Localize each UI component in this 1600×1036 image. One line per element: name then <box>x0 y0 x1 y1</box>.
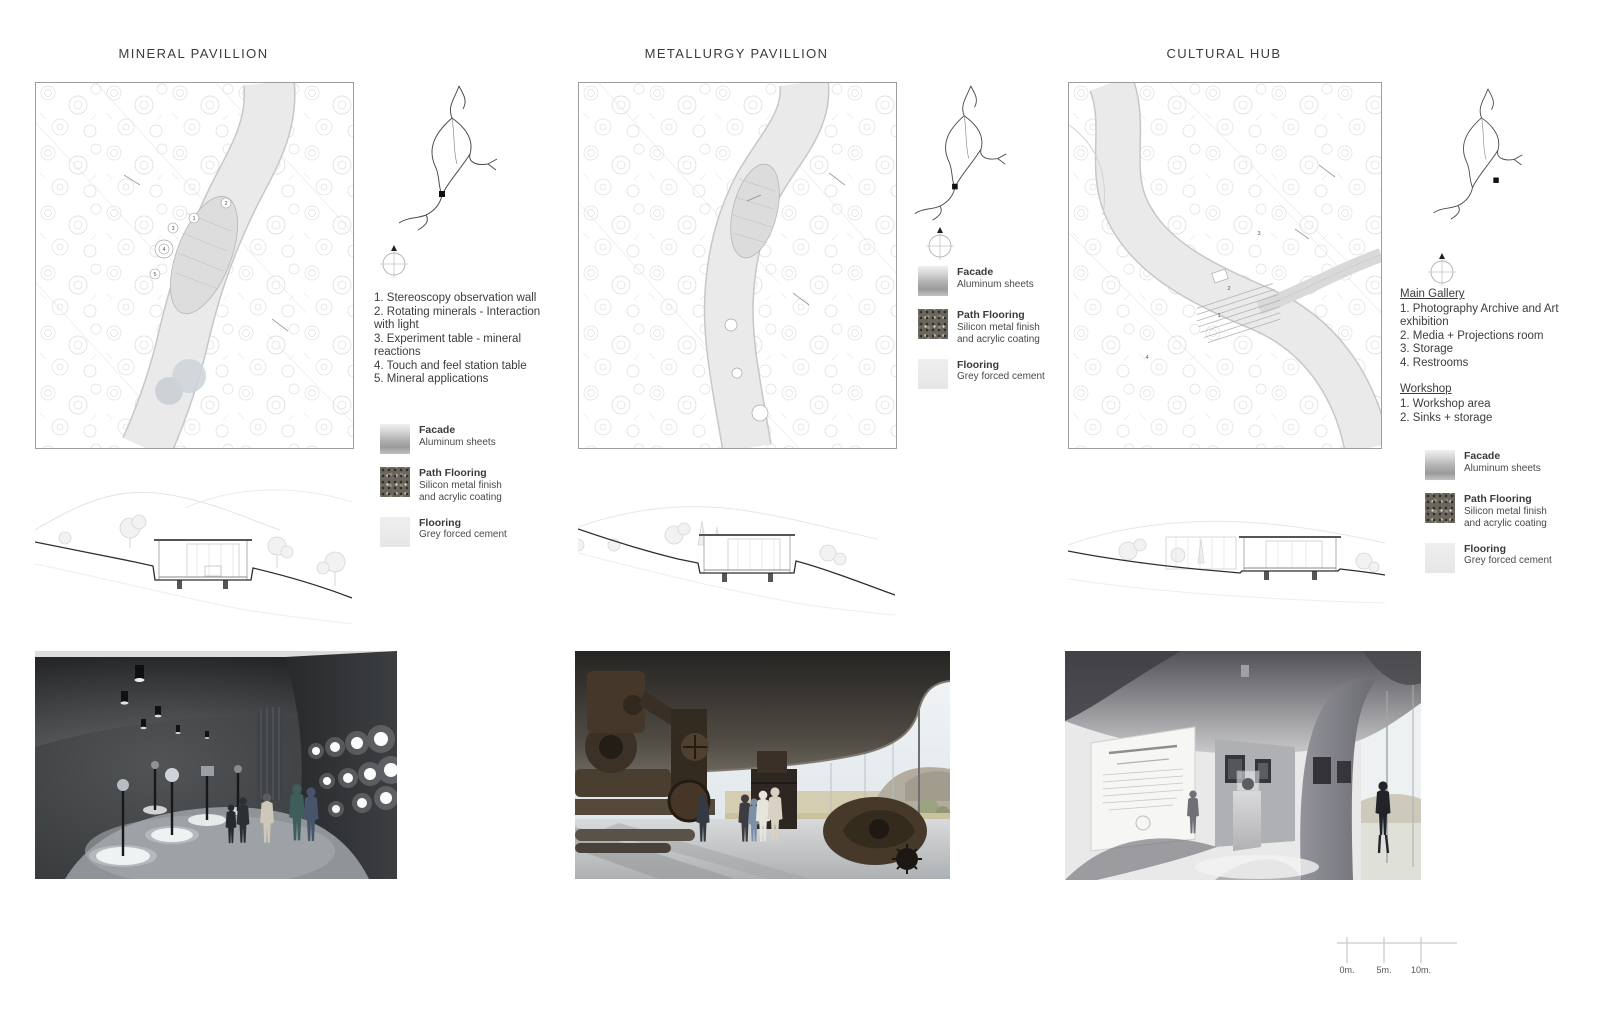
site-plan-metallurgy <box>578 82 897 449</box>
site-plan-cultural-hub: 1 2 3 4 <box>1068 82 1382 449</box>
flooring-swatch <box>918 359 948 389</box>
section-drawing-metallurgy <box>578 487 895 632</box>
svg-text:1: 1 <box>1217 313 1220 319</box>
legend-description: Aluminum sheets <box>957 279 1057 291</box>
legend-label: Path Flooring <box>957 309 1057 322</box>
program-item: 1. Photography Archive and Art exhibitio… <box>1400 303 1560 330</box>
scale-label-10m: 10m. <box>1411 965 1431 975</box>
legend-description: Grey forced cement <box>957 371 1057 383</box>
program-item: 4. Restrooms <box>1400 357 1560 371</box>
legend-label: Facade <box>957 266 1057 279</box>
legend-label: Facade <box>419 424 519 437</box>
program-list-cultural-hub: Main Gallery 1. Photography Archive and … <box>1400 288 1560 438</box>
facade-swatch <box>1425 450 1455 480</box>
program-item: 2. Rotating minerals - Interaction with … <box>374 306 546 333</box>
title-cultural-hub: CULTURAL HUB <box>1068 46 1380 61</box>
path-flooring-swatch <box>1425 493 1455 523</box>
legend-entry-flooring: FlooringGrey forced cement <box>380 517 519 547</box>
legend-entry-facade: FacadeAluminum sheets <box>1425 450 1564 480</box>
section-drawing-cultural-hub <box>1068 487 1385 632</box>
legend-entry-path-flooring: Path FlooringSilicon metal finish and ac… <box>380 467 519 504</box>
materials-legend-cultural-hub: FacadeAluminum sheets Path FlooringSilic… <box>1425 450 1564 586</box>
program-list-mineral: 1. Stereoscopy observation wall 2. Rotat… <box>374 292 546 387</box>
program-item: 2. Sinks + storage <box>1400 412 1560 426</box>
ceiling-spotlight <box>1241 665 1249 677</box>
legend-label: Facade <box>1464 450 1564 463</box>
north-compass-icon <box>1428 252 1456 291</box>
program-item: 1. Workshop area <box>1400 398 1560 412</box>
program-group-heading: Workshop <box>1400 383 1560 397</box>
scale-label-5m: 5m. <box>1376 965 1391 975</box>
locator-map-mineral <box>395 84 500 237</box>
scale-bar: 0m. 5m. 10m. <box>1315 905 1465 980</box>
program-item: 5. Mineral applications <box>374 373 546 387</box>
display-pedestal <box>1233 771 1261 851</box>
flooring-swatch <box>380 517 410 547</box>
legend-label: Path Flooring <box>419 467 519 480</box>
legend-description: Silicon metal finish and acrylic coating <box>1464 506 1564 530</box>
legend-entry-path-flooring: Path FlooringSilicon metal finish and ac… <box>1425 493 1564 530</box>
path-flooring-swatch <box>918 309 948 339</box>
facade-swatch <box>918 266 948 296</box>
legend-entry-flooring: FlooringGrey forced cement <box>918 359 1057 389</box>
section-drawing-mineral <box>35 468 352 638</box>
svg-text:5: 5 <box>153 272 156 278</box>
materials-legend-metallurgy: FacadeAluminum sheets Path FlooringSilic… <box>918 266 1057 402</box>
svg-text:3: 3 <box>1257 231 1260 237</box>
legend-description: Silicon metal finish and acrylic coating <box>957 322 1057 346</box>
legend-description: Aluminum sheets <box>419 437 519 449</box>
legend-description: Silicon metal finish and acrylic coating <box>419 480 519 504</box>
title-mineral-pavillion: MINERAL PAVILLION <box>35 46 352 61</box>
legend-description: Grey forced cement <box>1464 555 1564 567</box>
program-group-heading: Main Gallery <box>1400 288 1560 302</box>
flooring-swatch <box>1425 543 1455 573</box>
title-metallurgy-pavillion: METALLURGY PAVILLION <box>578 46 895 61</box>
program-item: 1. Stereoscopy observation wall <box>374 292 546 306</box>
program-item: 2. Media + Projections room <box>1400 330 1560 344</box>
legend-description: Aluminum sheets <box>1464 463 1564 475</box>
render-metallurgy-exterior <box>575 651 950 879</box>
render-cultural-hub-gallery <box>1065 651 1421 880</box>
svg-text:1: 1 <box>192 216 195 222</box>
svg-text:4: 4 <box>162 247 165 253</box>
legend-entry-flooring: FlooringGrey forced cement <box>1425 543 1564 573</box>
program-item: 3. Storage <box>1400 343 1560 357</box>
legend-label: Flooring <box>419 517 519 530</box>
legend-description: Grey forced cement <box>419 529 519 541</box>
svg-text:2: 2 <box>224 201 227 207</box>
site-plan-metallurgy-drawing <box>579 83 896 448</box>
facade-swatch <box>380 424 410 454</box>
site-plan-cultural-hub-drawing: 1 2 3 4 <box>1069 83 1381 448</box>
locator-map-cultural-hub <box>1430 84 1525 229</box>
program-group-workshop: Workshop 1. Workshop area 2. Sinks + sto… <box>1400 383 1560 425</box>
svg-text:3: 3 <box>171 226 174 232</box>
program-item: 4. Touch and feel station table <box>374 360 546 374</box>
path-flooring-swatch <box>380 467 410 497</box>
exhibition-poster <box>1091 727 1195 851</box>
legend-entry-path-flooring: Path FlooringSilicon metal finish and ac… <box>918 309 1057 346</box>
site-plan-mineral-drawing: 1 2 3 4 5 <box>36 83 353 448</box>
north-compass-icon <box>926 226 954 265</box>
legend-label: Path Flooring <box>1464 493 1564 506</box>
materials-legend-mineral: FacadeAluminum sheets Path FlooringSilic… <box>380 424 519 560</box>
north-compass-icon <box>380 244 408 283</box>
locator-map-metallurgy <box>910 84 1010 227</box>
legend-label: Flooring <box>1464 543 1564 556</box>
scale-label-0m: 0m. <box>1339 965 1354 975</box>
svg-text:4: 4 <box>1145 355 1148 361</box>
program-group-main-gallery: Main Gallery 1. Photography Archive and … <box>1400 288 1560 370</box>
presentation-board: MINERAL PAVILLION METALLURGY PAVILLION C… <box>0 0 1600 1036</box>
legend-label: Flooring <box>957 359 1057 372</box>
render-mineral-interior <box>35 651 397 879</box>
program-item: 3. Experiment table - mineral reactions <box>374 333 546 360</box>
svg-text:2: 2 <box>1227 286 1230 292</box>
legend-entry-facade: FacadeAluminum sheets <box>918 266 1057 296</box>
site-plan-mineral: 1 2 3 4 5 <box>35 82 354 449</box>
legend-entry-facade: FacadeAluminum sheets <box>380 424 519 454</box>
